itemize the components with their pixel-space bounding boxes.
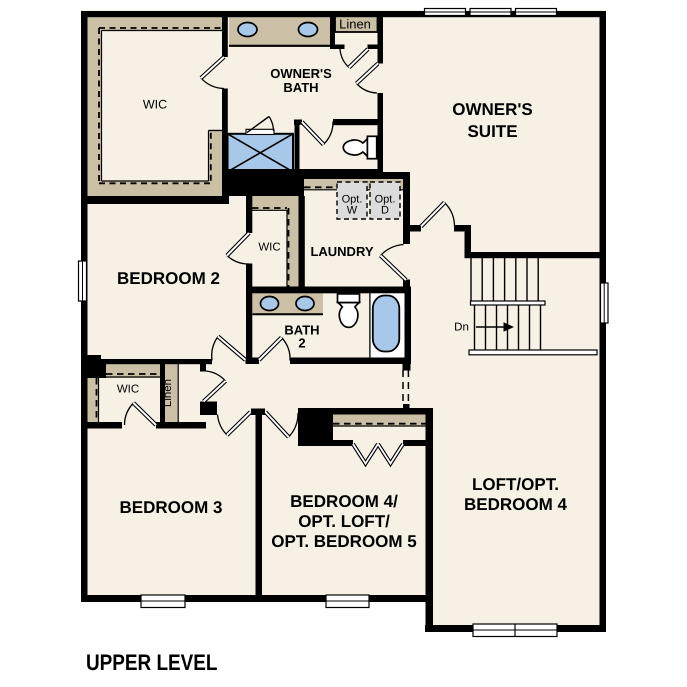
svg-text:WIC: WIC [258, 242, 280, 254]
svg-text:WIC: WIC [143, 98, 167, 112]
svg-text:BEDROOM 4: BEDROOM 4 [464, 495, 568, 514]
svg-text:BEDROOM 2: BEDROOM 2 [117, 269, 220, 288]
svg-text:OPT. BEDROOM 5: OPT. BEDROOM 5 [271, 532, 416, 551]
svg-text:SUITE: SUITE [467, 122, 517, 141]
svg-text:BEDROOM 4/: BEDROOM 4/ [290, 492, 398, 511]
svg-text:W: W [347, 205, 358, 217]
svg-text:WIC: WIC [117, 384, 139, 396]
svg-text:Dn: Dn [454, 322, 469, 334]
svg-text:D: D [381, 205, 389, 217]
svg-text:LAUNDRY: LAUNDRY [310, 244, 373, 259]
svg-text:OPT. LOFT/: OPT. LOFT/ [298, 512, 390, 531]
svg-text:Linen: Linen [162, 379, 174, 407]
svg-text:LOFT/OPT.: LOFT/OPT. [472, 475, 559, 494]
svg-text:BEDROOM 3: BEDROOM 3 [120, 498, 223, 517]
svg-text:UPPER LEVEL: UPPER LEVEL [86, 650, 218, 675]
svg-text:2: 2 [298, 336, 305, 351]
svg-text:OWNER'S: OWNER'S [270, 66, 332, 81]
svg-text:OWNER'S: OWNER'S [452, 100, 533, 119]
svg-text:BATH: BATH [283, 80, 318, 95]
svg-text:Linen: Linen [339, 17, 371, 32]
